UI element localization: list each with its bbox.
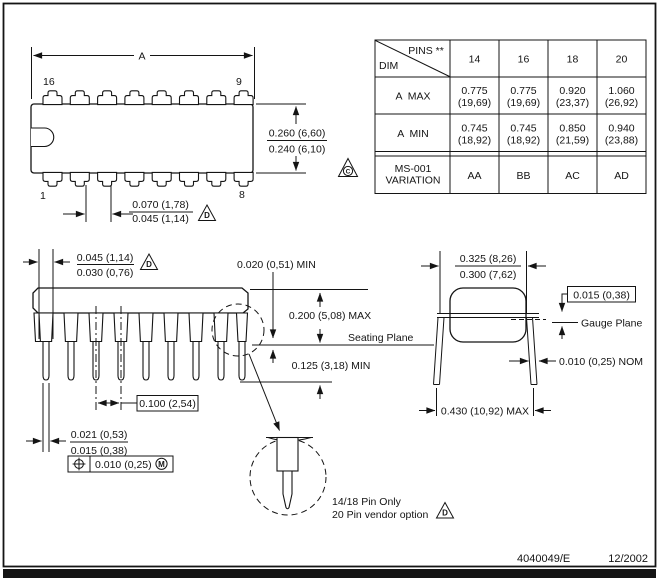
note-triangle-c: C: [339, 159, 358, 177]
dim-lead-span: 0.430 (10,92) MAX: [419, 388, 551, 418]
row-label-a-min: A MIN: [397, 128, 429, 140]
svg-text:0.745: 0.745: [461, 123, 487, 135]
dim-a-label: A: [138, 51, 145, 63]
package-body-end-view: [450, 288, 526, 342]
package-drawing: A 16 9 1 8 0.260 (6,60) 0.24: [0, 0, 659, 580]
dim-leg-mm: 0.015 (0,38): [71, 445, 128, 457]
table-col-18: 18: [567, 54, 579, 66]
svg-text:(23,37): (23,37): [556, 97, 589, 109]
dim-body-width-mm: 0.240 (6,10): [269, 144, 326, 156]
svg-text:(23,88): (23,88): [605, 135, 638, 147]
gauge-plane: Gauge Plane: [511, 318, 642, 330]
dim-lead-length-value: 0.125 (3,18) MIN: [292, 360, 371, 372]
dim-lead-thickness-value: 0.010 (0,25) NOM: [559, 356, 643, 368]
feature-control-frame: 0.010 (0,25) M: [68, 456, 173, 472]
svg-text:M: M: [158, 460, 165, 469]
svg-text:BB: BB: [516, 170, 530, 182]
footer: 4040049/E 12/2002: [517, 553, 648, 565]
svg-text:D: D: [442, 509, 448, 518]
revision-date: 12/2002: [608, 553, 648, 565]
detail-note-line2: 20 Pin vendor option: [332, 509, 428, 521]
dim-lead-width-inch: 0.070 (1,78): [132, 199, 189, 211]
row-label-a-max: A MAX: [395, 91, 430, 103]
svg-text:0.920: 0.920: [559, 85, 585, 97]
svg-text:AC: AC: [565, 170, 580, 182]
dim-body-width-inch: 0.260 (6,60): [269, 128, 326, 140]
svg-text:0.850: 0.850: [559, 123, 585, 135]
svg-text:0.775: 0.775: [461, 85, 487, 97]
table-pins-header: PINS **: [408, 45, 444, 57]
dim-lead-width-mm: 0.045 (1,14): [132, 213, 189, 225]
seating-plane-label: Seating Plane: [348, 332, 414, 344]
svg-text:0.775: 0.775: [510, 85, 536, 97]
detail-leader-line: [249, 354, 280, 431]
dim-gauge-offset-value: 0.015 (0,38): [573, 290, 630, 302]
svg-text:(26,92): (26,92): [605, 97, 638, 109]
dim-gauge-offset: 0.015 (0,38): [562, 287, 636, 340]
note-triangle-c-letter: C: [346, 169, 351, 176]
pin-number-16: 16: [43, 76, 55, 88]
side-view-legs: [43, 342, 245, 381]
end-view: 0.325 (8,26) 0.300 (7,62) Gauge Plane 0.…: [419, 251, 643, 418]
document-number: 4040049/E: [517, 553, 570, 565]
note-triangle-d-letter: D: [204, 211, 210, 220]
fcf-tolerance: 0.010 (0,25): [95, 459, 152, 471]
true-position-icon: [73, 458, 86, 471]
pin1-index-notch: [31, 128, 54, 147]
svg-text:AA: AA: [467, 170, 481, 182]
mmc-modifier-icon: M: [156, 458, 167, 469]
dim-shoulder-inch: 0.045 (1,14): [77, 252, 134, 264]
pin-number-1: 1: [40, 190, 46, 202]
frame-bottom-bar: [3, 569, 656, 578]
pin-number-9: 9: [236, 76, 242, 88]
table-row-variation: MS-001 VARIATION AA BB AC AD: [385, 163, 629, 187]
svg-text:(21,59): (21,59): [556, 135, 589, 147]
row-label-ms001: MS-001: [395, 163, 432, 175]
svg-text:1.060: 1.060: [608, 85, 634, 97]
row-label-variation: VARIATION: [385, 175, 440, 187]
pin-number-8: 8: [239, 189, 245, 201]
side-view-shoulders: [39, 313, 228, 342]
datasheet-mechanical-page: A 16 9 1 8 0.260 (6,60) 0.24: [0, 0, 659, 580]
svg-text:0.745: 0.745: [510, 123, 536, 135]
dim-standoff-value: 0.020 (0,51) MIN: [237, 259, 316, 271]
gauge-plane-label: Gauge Plane: [581, 318, 642, 330]
table-row-a-max: A MAX 0.775 (19,69) 0.775 (19,69) 0.920 …: [395, 85, 638, 109]
table-col-20: 20: [616, 54, 628, 66]
table-row-a-min: A MIN 0.745 (18,92) 0.745 (18,92) 0.850 …: [397, 123, 638, 147]
dim-body-width: 0.260 (6,60) 0.240 (6,10): [256, 104, 327, 173]
detail-note-line1: 14/18 Pin Only: [332, 496, 402, 508]
dim-leg-inch: 0.021 (0,53): [71, 429, 128, 441]
detail-lead-tip: [283, 471, 292, 509]
dim-leg-width: 0.021 (0,53) 0.015 (0,38) 0.010 (0,25) M: [26, 383, 173, 472]
svg-text:AD: AD: [614, 170, 629, 182]
svg-text:D: D: [146, 260, 152, 269]
svg-text:0.940: 0.940: [608, 123, 634, 135]
dim-row-inch: 0.325 (8,26): [460, 253, 517, 265]
package-body-side-view: [33, 288, 248, 313]
svg-text:(18,92): (18,92): [458, 135, 491, 147]
svg-text:(18,92): (18,92): [507, 135, 540, 147]
svg-text:(19,69): (19,69): [507, 97, 540, 109]
dimension-table: PINS ** DIM 14 16 18 20 A MAX 0.775 (19,…: [339, 40, 647, 194]
table-col-16: 16: [518, 54, 530, 66]
top-view-pins-bottom: [43, 172, 253, 186]
detail-lead-shoulder: [277, 438, 298, 472]
table-dim-header: DIM: [379, 60, 398, 72]
dim-height-value: 0.200 (5,08) MAX: [289, 310, 371, 322]
top-view-pins-top: [43, 91, 253, 105]
table-col-14: 14: [469, 54, 481, 66]
dim-pitch-value: 0.100 (2,54): [139, 398, 196, 410]
dim-shoulder-mm: 0.030 (0,76): [77, 267, 134, 279]
side-view: 0.045 (1,14) 0.030 (0,76) D 0.100 (2,54)…: [23, 249, 434, 472]
svg-text:(19,69): (19,69): [458, 97, 491, 109]
dim-row-mm: 0.300 (7,62): [460, 269, 517, 281]
dim-lead-span-value: 0.430 (10,92) MAX: [441, 406, 529, 418]
dim-lead-width-top-view: 0.070 (1,78) 0.045 (1,14) D: [63, 185, 216, 225]
package-body-top-view: [31, 104, 253, 173]
top-view: A 16 9 1 8 0.260 (6,60) 0.24: [31, 47, 327, 225]
lead-detail: 14/18 Pin Only 20 Pin vendor option D: [250, 438, 454, 522]
